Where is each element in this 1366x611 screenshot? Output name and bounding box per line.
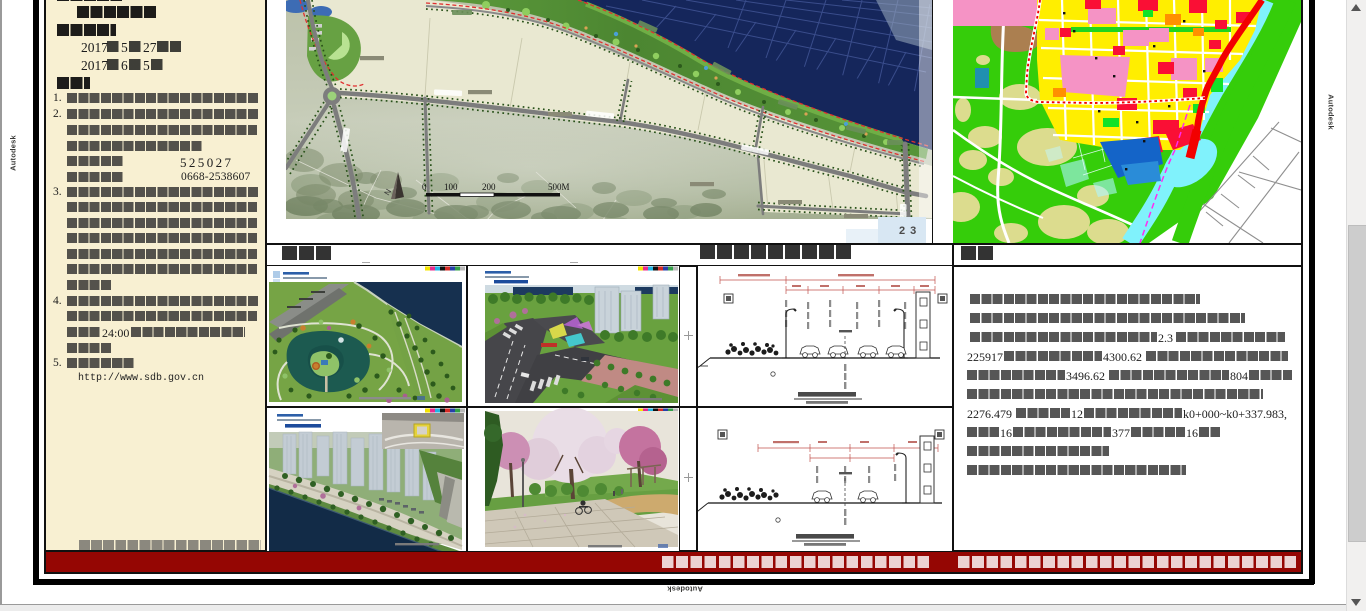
svg-text:0: 0 [422,182,427,192]
svg-text:23: 23 [899,225,921,237]
svg-text:100: 100 [444,182,458,192]
svg-text:200: 200 [482,182,496,192]
svg-text:500M: 500M [548,182,570,192]
